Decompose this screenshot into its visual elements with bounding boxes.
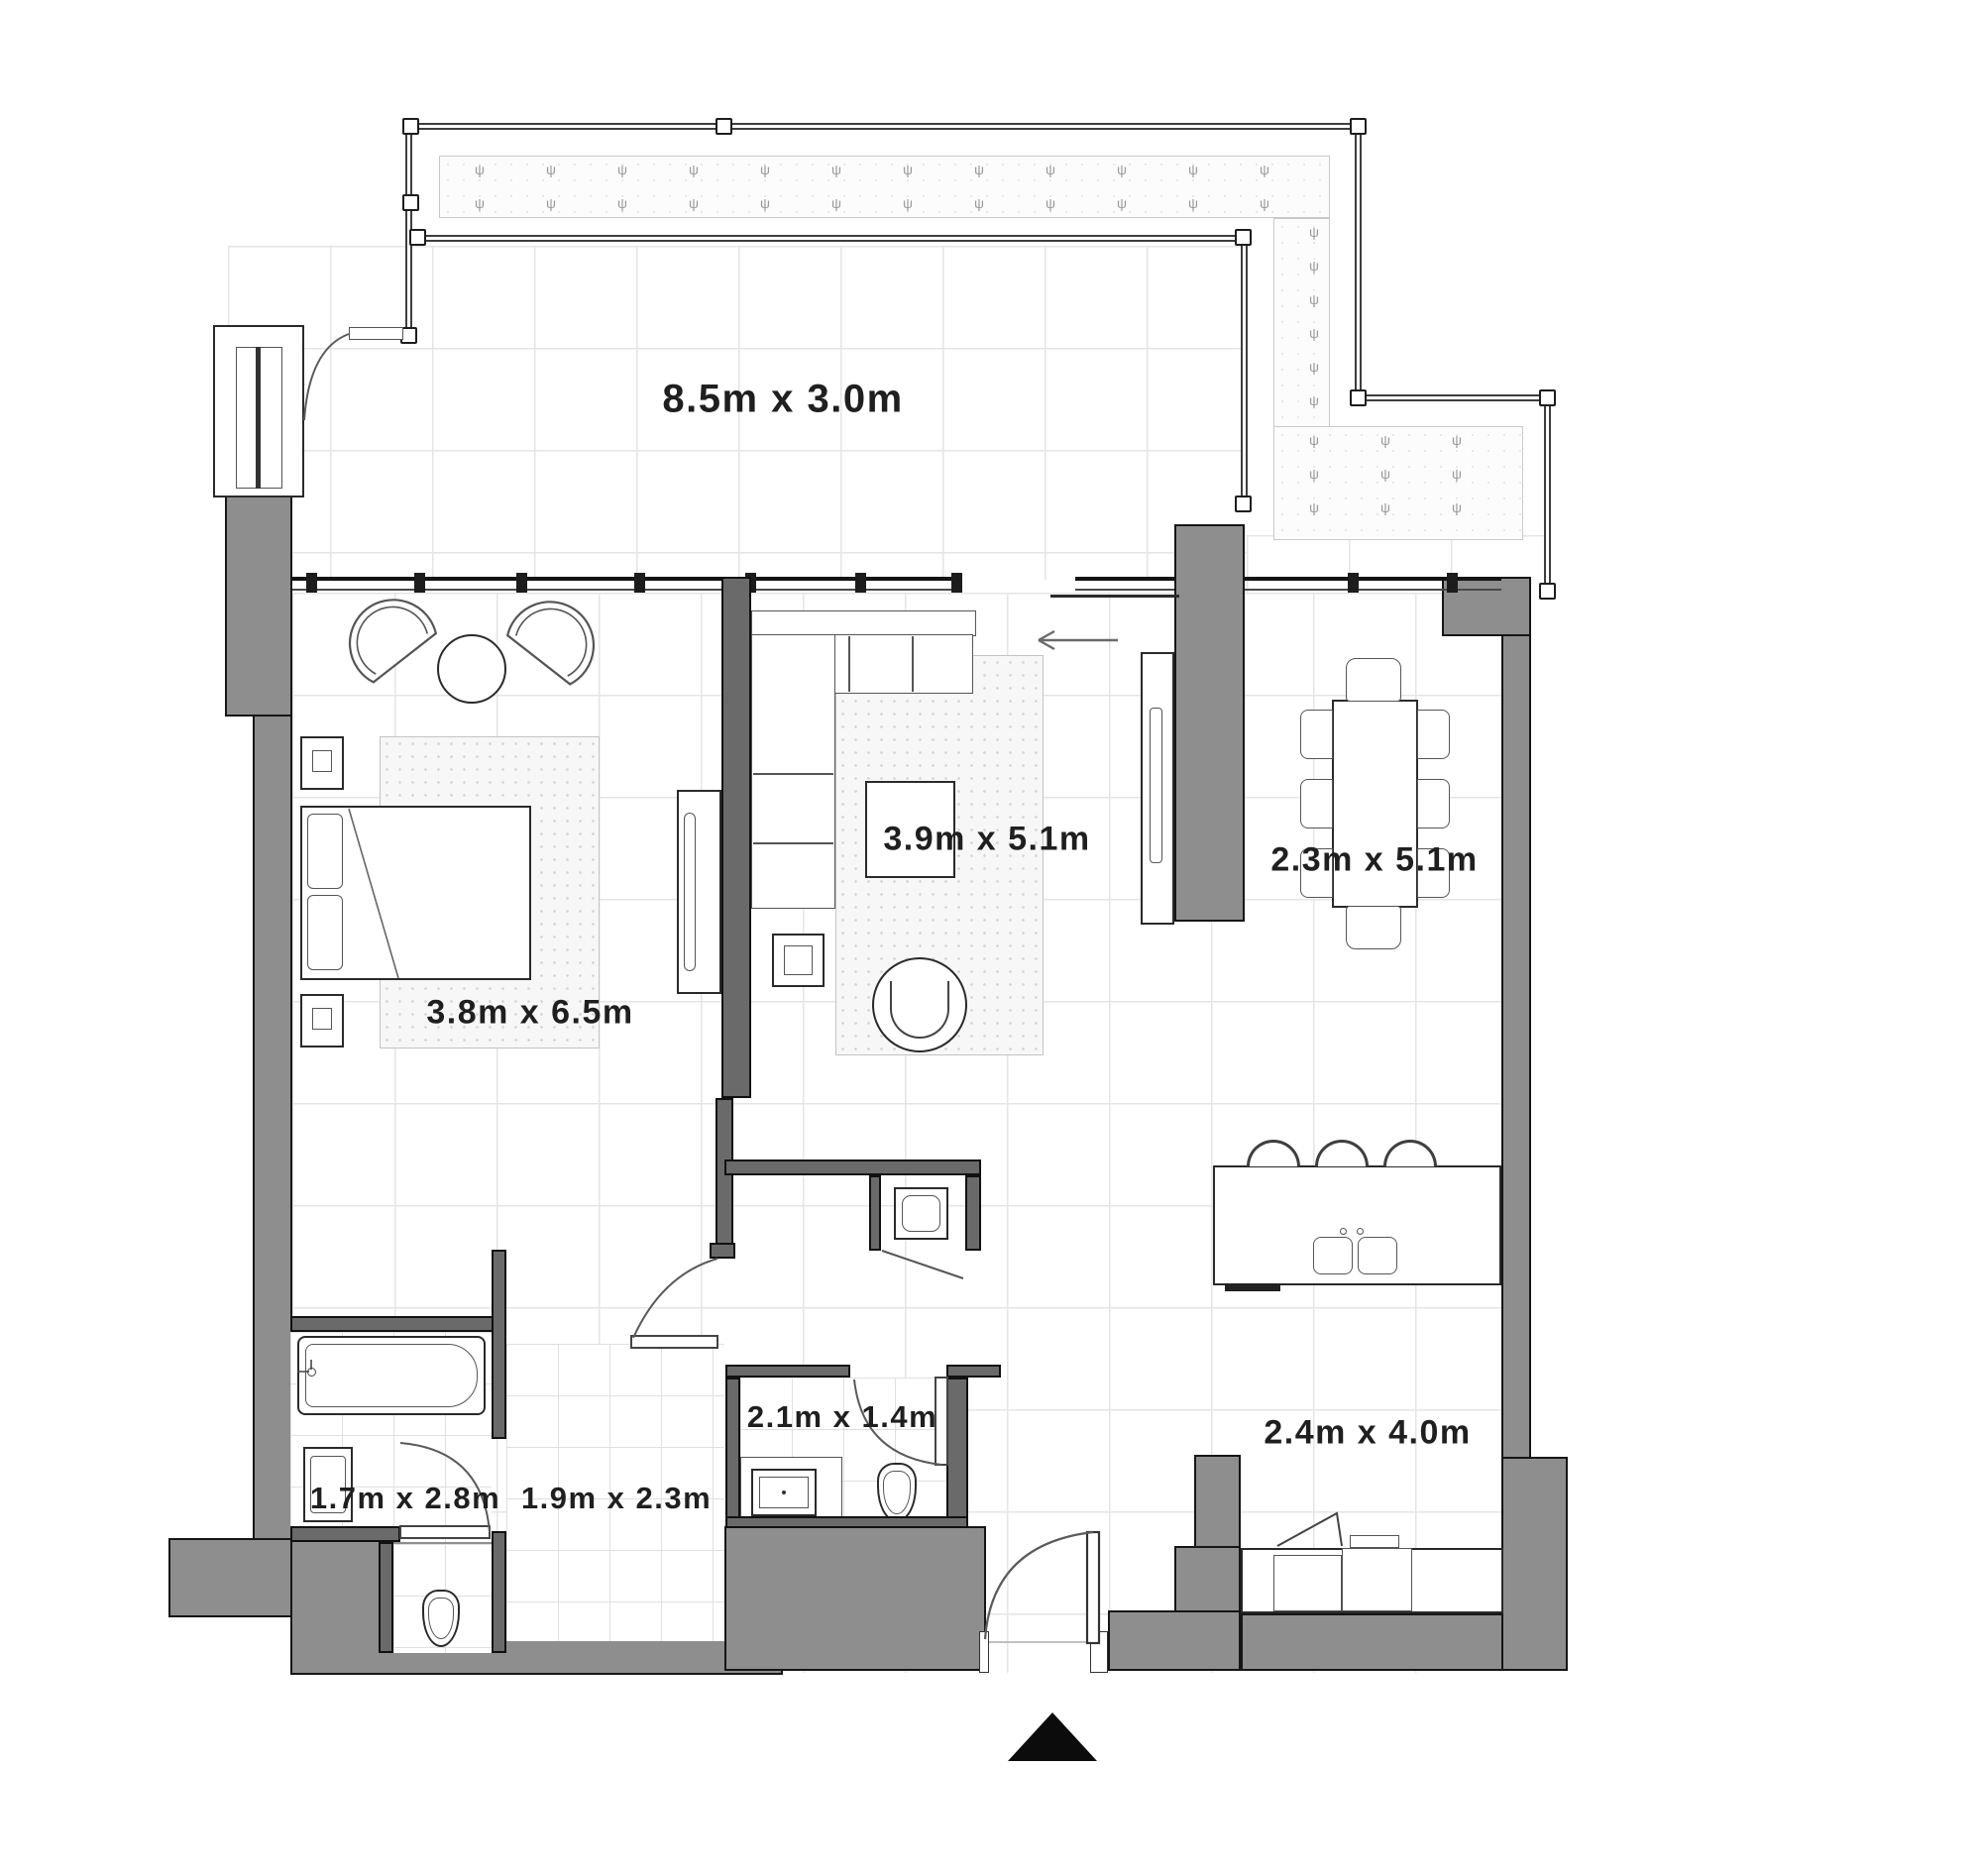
wall-living-dining-pier xyxy=(1174,524,1245,922)
planter-right xyxy=(1273,218,1330,428)
railing-post xyxy=(1235,229,1252,246)
dining-chair-top xyxy=(1346,658,1401,702)
railing-right-1 xyxy=(1355,123,1362,401)
wall-closet-top xyxy=(724,1159,981,1175)
planter-sprig-icon: ψ xyxy=(1309,326,1319,340)
planter-sprig-icon: ψ xyxy=(974,196,984,210)
planter-sprig-icon: ψ xyxy=(1309,225,1319,239)
cooktop-hood xyxy=(1350,1535,1399,1548)
planter-sprig-icon: ψ xyxy=(831,163,841,176)
wall-right xyxy=(1501,593,1531,1461)
oven xyxy=(1273,1555,1342,1611)
planter-sprig-icon: ψ xyxy=(689,163,699,176)
planter-sprig-icon: ψ xyxy=(1260,196,1269,210)
label-dining: 2.3m x 5.1m xyxy=(1270,841,1478,880)
planter-sprig-icon: ψ xyxy=(546,196,556,210)
side-table-inner xyxy=(784,945,813,975)
label-kitchen: 2.4m x 4.0m xyxy=(1264,1414,1471,1453)
planter-sprig-icon: ψ xyxy=(1309,393,1319,407)
entry-jamb-left xyxy=(979,1631,989,1673)
window-mullion xyxy=(1348,573,1359,593)
wall-bedroom-living xyxy=(721,577,751,1098)
round-side-table xyxy=(437,634,506,704)
railing-inner-top xyxy=(415,235,1251,242)
wall-bathroom2-left xyxy=(725,1378,740,1528)
sink-basin xyxy=(1313,1237,1353,1274)
planter-sprig-icon: ψ xyxy=(1452,433,1462,447)
planter-sprig-icon: ψ xyxy=(1117,196,1127,210)
tv xyxy=(1150,708,1162,863)
washing-machine-drum xyxy=(902,1195,940,1232)
planter-sprig-icon: ψ xyxy=(546,163,556,176)
wall-closet-divider xyxy=(869,1175,881,1251)
planter-sprig-icon: ψ xyxy=(1260,163,1269,176)
planter-sprig-icon: ψ xyxy=(1309,259,1319,273)
railing-post xyxy=(1539,583,1556,600)
nightstand-lamp xyxy=(312,1008,332,1030)
wall-bath2-block xyxy=(724,1526,986,1671)
planter-sprig-icon: ψ xyxy=(831,196,841,210)
planter-sprig-icon: ψ xyxy=(475,163,485,176)
sofa-seam xyxy=(848,636,850,692)
floor-plan: 8.5m x 3.0m 3.8m x 6.5m 3.9m x 5.1m 2.3m… xyxy=(0,0,1982,1876)
window-mullion xyxy=(855,573,866,593)
planter-sprig-icon: ψ xyxy=(1309,292,1319,306)
window-band-3 xyxy=(1245,577,1501,581)
planter-sprig-icon: ψ xyxy=(1046,163,1055,176)
dining-chair-left xyxy=(1300,710,1333,759)
wall-post-dressing-door xyxy=(710,1243,735,1259)
wall-entry-pier-top xyxy=(1194,1455,1241,1550)
label-bedroom: 3.8m x 6.5m xyxy=(426,994,633,1033)
planter-sprig-icon: ψ xyxy=(1309,360,1319,374)
drain-dot xyxy=(782,1490,786,1494)
railing-inner-right xyxy=(1241,235,1248,509)
wall-ensuite-right xyxy=(492,1250,506,1439)
wall-left-lower xyxy=(253,715,292,1542)
balcony-door-leaf xyxy=(349,327,403,340)
railing-post xyxy=(1235,496,1252,512)
planter-sprig-icon: ψ xyxy=(1309,500,1319,514)
faucet-dot xyxy=(1340,1228,1347,1235)
planter-sprig-icon: ψ xyxy=(617,163,627,176)
railing-post xyxy=(1350,389,1367,406)
wall-closet-right xyxy=(965,1175,981,1251)
label-bathroom2: 2.1m x 1.4m xyxy=(747,1399,937,1435)
pillow xyxy=(307,895,343,970)
planter-sprig-icon: ψ xyxy=(1309,433,1319,447)
label-ensuite: 1.7m x 2.8m xyxy=(310,1481,500,1516)
planter-sprig-icon: ψ xyxy=(1117,163,1127,176)
railing-post xyxy=(409,229,426,246)
label-dressing: 1.9m x 2.3m xyxy=(521,1481,712,1516)
window-sill-2 xyxy=(1075,589,1174,591)
window-band-2 xyxy=(1075,577,1174,581)
planter-sprig-icon: ψ xyxy=(1188,163,1198,176)
window-mullion xyxy=(634,573,645,593)
planter-sprig-icon: ψ xyxy=(689,196,699,210)
pillow xyxy=(307,814,343,889)
planter-sprig-icon: ψ xyxy=(903,196,913,210)
wall-bedroom-hall xyxy=(716,1098,733,1257)
planter-sprig-icon: ψ xyxy=(903,163,913,176)
balcony-closet-divider xyxy=(256,347,261,489)
wall-right-lower xyxy=(1501,1457,1568,1671)
wall-bathroom2-right xyxy=(946,1378,968,1528)
planter-sprig-icon: ψ xyxy=(617,196,627,210)
railing-post xyxy=(1350,118,1367,135)
sofa-seam xyxy=(912,636,914,692)
faucet-dot xyxy=(1357,1228,1364,1235)
dining-chair-left xyxy=(1300,779,1333,828)
label-balcony: 8.5m x 3.0m xyxy=(662,378,903,422)
wall-ensuite-bottom xyxy=(290,1526,400,1542)
railing-step xyxy=(1355,394,1553,401)
dining-chair-bottom xyxy=(1346,906,1401,949)
wall-ensuite-right-lower xyxy=(492,1531,506,1653)
railing-post xyxy=(402,118,419,135)
planter-sprig-icon: ψ xyxy=(974,163,984,176)
window-mullion xyxy=(951,573,962,593)
window-sill-3 xyxy=(1245,589,1501,591)
window-mullion xyxy=(516,573,527,593)
planter-sprig-icon: ψ xyxy=(760,163,770,176)
dining-chair-right xyxy=(1417,779,1450,828)
wall-entry-pier-foot xyxy=(1108,1610,1241,1671)
bathtub-faucet xyxy=(307,1368,316,1377)
railing-post xyxy=(716,118,732,135)
planter-sprig-icon: ψ xyxy=(1380,433,1390,447)
wall-bathroom2-bottom xyxy=(725,1516,968,1528)
sofa-seam xyxy=(753,842,833,844)
wall-bottom-left-block xyxy=(168,1538,299,1617)
railing-right-2 xyxy=(1544,394,1551,598)
label-living: 3.9m x 5.1m xyxy=(883,821,1090,859)
entry-jamb-right xyxy=(1090,1631,1108,1673)
dining-chair-right xyxy=(1417,710,1450,759)
sofa-chaise xyxy=(751,634,835,909)
window-mullion xyxy=(1447,573,1458,593)
sofa-seam xyxy=(753,773,833,775)
planter-sprig-icon: ψ xyxy=(760,196,770,210)
planter-sprig-icon: ψ xyxy=(475,196,485,210)
planter-sprig-icon: ψ xyxy=(1046,196,1055,210)
planter-sprig-icon: ψ xyxy=(1188,196,1198,210)
planter-sprig-icon: ψ xyxy=(1309,467,1319,481)
bathtub-inner xyxy=(305,1344,478,1407)
kitchen-island-tick xyxy=(1225,1283,1280,1291)
railing-post xyxy=(1539,389,1556,406)
armchair-seat xyxy=(890,981,949,1039)
cooktop xyxy=(1342,1548,1412,1611)
wall-ensuite-top xyxy=(290,1316,495,1332)
railing-post xyxy=(402,194,419,211)
window-mullion xyxy=(414,573,425,593)
entry-threshold xyxy=(989,1641,1090,1643)
planter-sprig-icon: ψ xyxy=(1380,467,1390,481)
planter-sprig-icon: ψ xyxy=(1452,500,1462,514)
railing-top xyxy=(408,123,1362,130)
window-mullion xyxy=(306,573,317,593)
planter-sprig-icon: ψ xyxy=(1380,500,1390,514)
sink-basin xyxy=(1358,1237,1397,1274)
wall-wc-left xyxy=(379,1542,393,1653)
wall-kitchen-bottom xyxy=(1241,1613,1503,1671)
sofa-back xyxy=(751,610,976,636)
north-arrow xyxy=(1008,1712,1097,1761)
wall-bathroom2-top-b xyxy=(946,1365,1001,1378)
wall-bathroom2-top-a xyxy=(725,1365,850,1378)
nightstand-lamp xyxy=(312,750,332,772)
wardrobe-door xyxy=(684,813,696,971)
planter-sprig-icon: ψ xyxy=(1452,467,1462,481)
sliding-panel-open xyxy=(1050,595,1179,598)
